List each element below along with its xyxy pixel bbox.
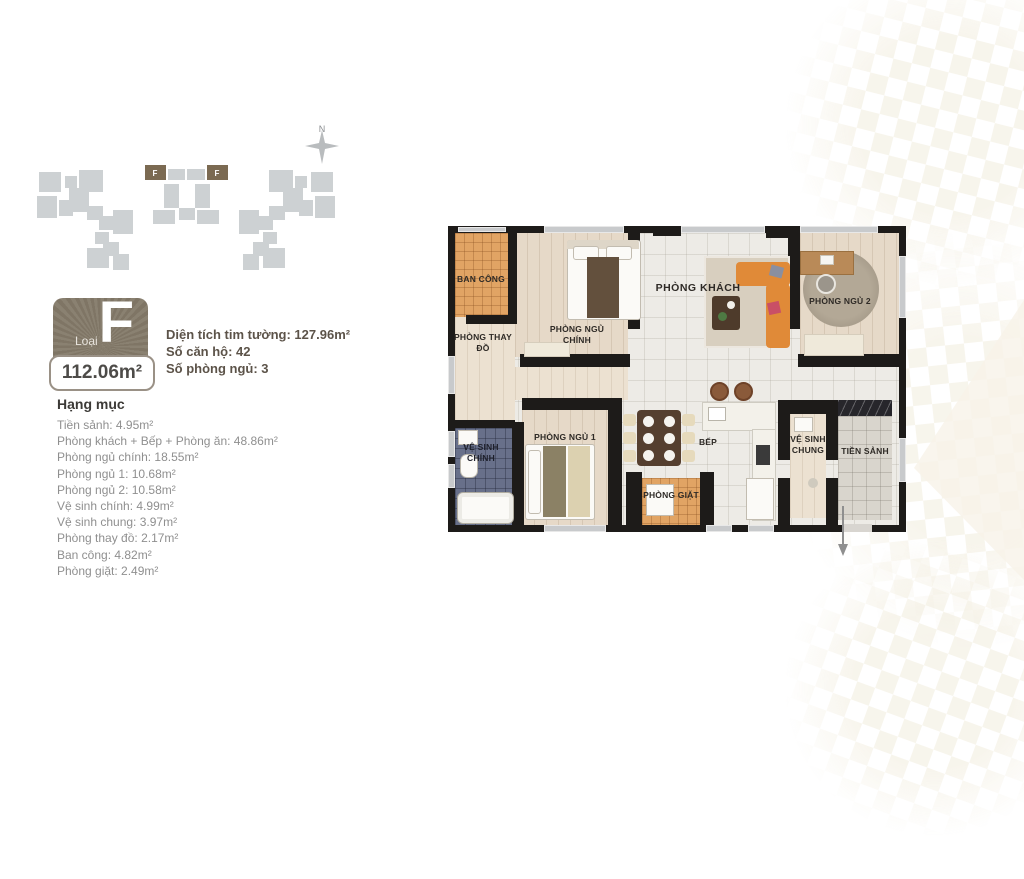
wall-balcony-bottom (466, 315, 517, 324)
bg-triangle-right (914, 300, 1024, 580)
dining-chair (623, 450, 636, 462)
label-bedroom2: PHÒNG NGỦ 2 (794, 296, 886, 307)
building-tower-left (37, 170, 133, 270)
list-item: Tiền sảnh: 4.95m² (57, 417, 278, 433)
label-dressing: PHÒNG THAY ĐỒ (452, 332, 514, 353)
info-gross-area: Diện tích tim tường: 127.96m² (166, 326, 350, 343)
bar-stool (734, 382, 753, 401)
plate (643, 450, 654, 461)
unit-area-value: 112.06m² (49, 355, 155, 391)
bedroom2-chair (816, 274, 836, 294)
unit-info: Diện tích tim tường: 127.96m² Số căn hộ:… (166, 326, 350, 377)
bg-pattern-bottom-right (742, 495, 1024, 879)
type-letter: F (99, 294, 134, 352)
bedroom1-blanket-olive (543, 446, 566, 517)
label-master-bedroom: PHÒNG NGỦ CHÍNH (540, 324, 614, 345)
label-common-bath: VỆ SINH CHUNG (782, 434, 834, 455)
wall-dressing-bath-divider (455, 420, 515, 428)
info-unit-count: Số căn hộ: 42 (166, 343, 350, 360)
hallway-floor (515, 367, 628, 400)
site-map: N F F (25, 118, 365, 293)
type-label: Loại (75, 334, 98, 348)
window-living (681, 226, 765, 233)
wall-commonbath-top (778, 400, 840, 414)
floor-plan: BAN CÔNG PHÒNG THAY ĐỒ PHÒNG NGỦ CHÍNH P… (448, 226, 906, 532)
list-item: Phòng ngủ 1: 10.68m² (57, 466, 278, 482)
label-bedroom1: PHÒNG NGỦ 1 (522, 432, 608, 443)
building-tower-middle: F F (145, 165, 228, 224)
wall-laundry-right (700, 472, 714, 532)
window-masterbed (544, 226, 624, 233)
bedroom1-pillows (528, 450, 541, 514)
kitchen-stove (756, 445, 770, 465)
window-bedroom2-right (899, 256, 906, 318)
window-bedroom1-bottom (544, 525, 606, 532)
info-bedroom-count: Số phòng ngủ: 3 (166, 360, 350, 377)
bedroom2-wardrobe (804, 334, 864, 356)
dining-chair (623, 414, 636, 426)
site-map-graphic: N F F (25, 118, 365, 288)
window-foyer-right (899, 438, 906, 482)
sofa-pillow-pink (767, 301, 781, 315)
list-item: Phòng ngủ chính: 18.55m² (57, 449, 278, 465)
label-laundry: PHÒNG GIẶT (640, 490, 702, 501)
coffee-table-plant (718, 312, 727, 321)
list-item: Phòng ngủ 2: 10.58m² (57, 482, 278, 498)
window-kitchen-bottom-2 (748, 525, 774, 532)
window-masterbath-2 (448, 464, 455, 488)
unit-marker-f-left: F (153, 169, 158, 178)
plate (664, 433, 675, 444)
wall-commonbath-left-lower (778, 478, 790, 532)
commonbath-sink (794, 417, 813, 432)
categories-heading: Hạng mục (57, 396, 125, 412)
plate (664, 416, 675, 427)
wall-laundry-left (626, 472, 642, 532)
window-bedroom2-top (800, 226, 878, 233)
label-living: PHÒNG KHÁCH (646, 282, 750, 295)
dining-chair (623, 432, 636, 444)
shower-drain (808, 478, 818, 488)
list-item: Phòng thay đồ: 2.17m² (57, 530, 278, 546)
bedroom2-laptop (820, 255, 834, 265)
bedroom1-blanket-cream (568, 446, 590, 517)
plate (643, 433, 654, 444)
wall-pillar-living-top (653, 226, 681, 236)
kitchen-sink (708, 407, 726, 421)
sofa-right-arm (766, 284, 790, 348)
label-balcony: BAN CÔNG (452, 274, 510, 285)
list-item: Phòng khách + Bếp + Phòng ăn: 48.86m² (57, 433, 278, 449)
categories-list: Tiền sảnh: 4.95m² Phòng khách + Bếp + Ph… (57, 417, 278, 579)
label-kitchen: BẾP (688, 437, 728, 448)
bathtub (457, 492, 514, 524)
plate (643, 416, 654, 427)
compass-icon: N (305, 124, 339, 164)
door-dressing-left (448, 356, 455, 394)
label-master-bath: VỆ SINH CHÍNH (454, 442, 508, 463)
master-bed-runner (587, 257, 619, 318)
bar-stool (710, 382, 729, 401)
foyer-marble-wardrobe (838, 400, 892, 416)
plate (664, 450, 675, 461)
list-item: Ban công: 4.82m² (57, 547, 278, 563)
wall-pillar-bedroom2-top (766, 226, 796, 238)
list-item: Vệ sinh chung: 3.97m² (57, 514, 278, 530)
label-foyer: TIỀN SẢNH (840, 446, 890, 457)
coffee-table-dish (727, 301, 735, 309)
dining-chair (682, 450, 695, 462)
window-kitchen-bottom-1 (706, 525, 732, 532)
list-item: Vệ sinh chính: 4.99m² (57, 498, 278, 514)
wall-bedroom1-top (522, 398, 622, 410)
balcony-rail (458, 227, 506, 232)
unit-marker-f-right: F (215, 169, 220, 178)
wall-bedroom1-right (608, 398, 622, 532)
dining-chair (682, 414, 695, 426)
list-item: Phòng giặt: 2.49m² (57, 563, 278, 579)
entry-arrow-icon (834, 502, 852, 558)
kitchen-fridge (746, 478, 774, 520)
building-tower-right (239, 170, 335, 270)
